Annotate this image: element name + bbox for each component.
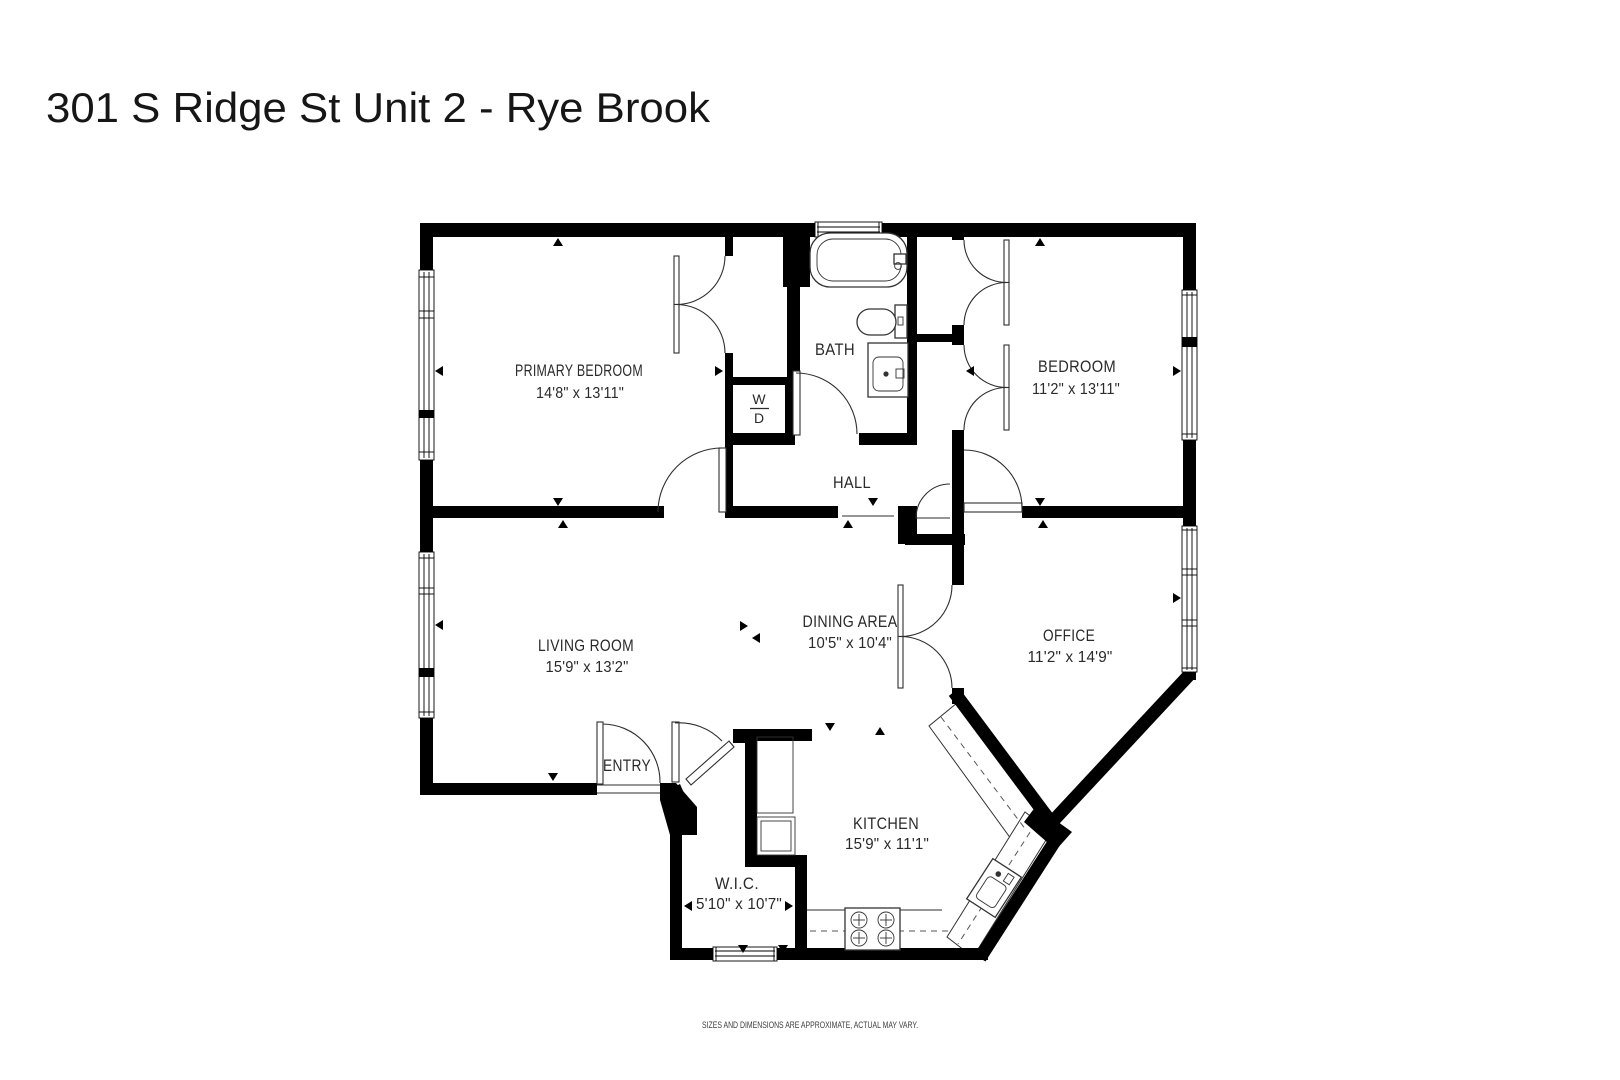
- room-label-dining-area: DINING AREA: [803, 612, 898, 631]
- dimension-arrows: [435, 238, 1181, 953]
- closet-french-doors-bedroom-1: [953, 240, 1009, 325]
- hall-closet-door: [916, 484, 950, 518]
- room-dims-office: 11'2" x 14'9": [1028, 649, 1113, 666]
- window-primary-bedroom-left: [419, 270, 434, 460]
- page-title: 301 S Ridge St Unit 2 - Rye Brook: [46, 84, 711, 131]
- room-label-bedroom: BEDROOM: [1038, 357, 1116, 376]
- closet-french-doors-bedroom-2: [953, 345, 1009, 430]
- walls: [420, 223, 1196, 960]
- bathroom-sink: [868, 343, 908, 397]
- room-dims-living-room: 15'9" x 13'2": [546, 659, 629, 676]
- room-label-kitchen: KITCHEN: [853, 814, 919, 833]
- kitchen-cabinets: [757, 737, 795, 855]
- bathtub: [810, 233, 907, 287]
- room-dims-dining-area: 10'5" x 10'4": [808, 635, 892, 652]
- room-dims-wic: 5'10" x 10'7": [696, 896, 782, 913]
- room-dims-kitchen: 15'9" x 11'1": [845, 836, 929, 853]
- washer-label: W: [752, 391, 766, 407]
- window-living-room-left: [419, 552, 434, 718]
- room-dims-bedroom: 11'2" x 13'11": [1032, 381, 1120, 398]
- disclaimer: SIZES AND DIMENSIONS ARE APPROXIMATE, AC…: [702, 1020, 918, 1030]
- room-label-office: OFFICE: [1043, 626, 1095, 645]
- window-bedroom-right: [1182, 290, 1197, 440]
- room-dims-primary-bedroom: 14'8" x 13'11": [536, 385, 624, 402]
- closet-french-doors-primary: [674, 256, 734, 353]
- dryer-label: D: [754, 410, 764, 426]
- bath-door: [793, 371, 857, 435]
- stove: [845, 908, 900, 950]
- room-label-bath: BATH: [815, 340, 855, 359]
- floor-plan-page: PRIMARY BEDROOM 14'8" x 13'11" BATH BEDR…: [0, 0, 1620, 1080]
- window-office-right: [1182, 526, 1197, 672]
- washer-dryer-label: W D: [750, 391, 769, 426]
- room-label-wic: W.I.C.: [715, 874, 759, 893]
- primary-bedroom-door: [658, 448, 726, 512]
- bedroom-door: [964, 450, 1022, 512]
- room-label-primary-bedroom: PRIMARY BEDROOM: [515, 361, 643, 380]
- room-label-living-room: LIVING ROOM: [538, 636, 634, 655]
- office-french-doors: [898, 585, 963, 688]
- windows: [419, 222, 1197, 961]
- floor-plan: PRIMARY BEDROOM 14'8" x 13'11" BATH BEDR…: [0, 0, 1620, 1080]
- toilet: [857, 305, 907, 338]
- room-label-entry: ENTRY: [603, 756, 651, 775]
- kitchen-counters: [807, 703, 1051, 957]
- front-door: [672, 722, 734, 785]
- room-label-hall: HALL: [833, 473, 871, 492]
